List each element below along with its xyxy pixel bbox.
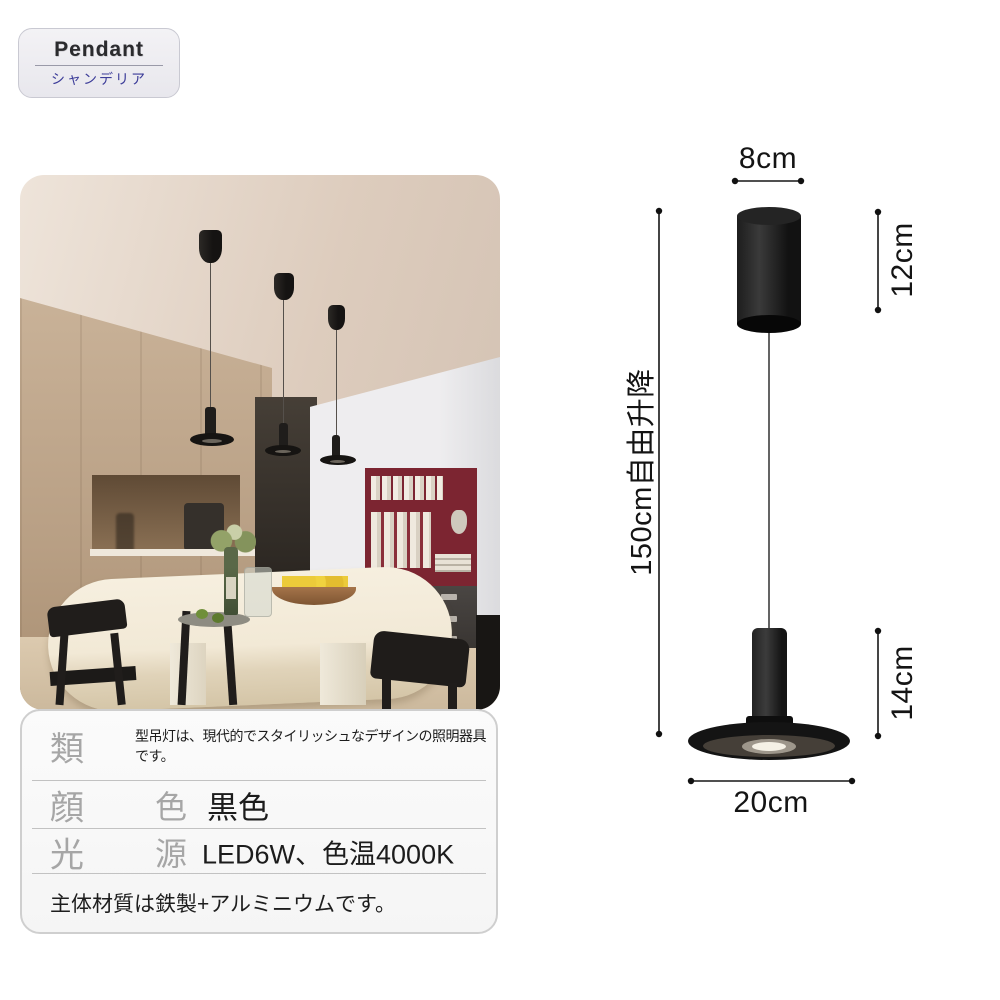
- measure-dot: [688, 778, 694, 784]
- spec-value-light: LED6W、色温4000K: [202, 832, 454, 871]
- spec-table: 類 型吊灯は、現代的でスタイリッシュなデザインの照明器具です。 顔 色 黒色 光…: [20, 709, 498, 934]
- spec-label-light-2: 源: [155, 829, 187, 875]
- dim-label-shade-diameter: 20cm: [733, 786, 808, 820]
- pendant-lens: [330, 460, 345, 463]
- table-pedestal: [320, 643, 366, 705]
- pendant-ceiling-mount: [199, 230, 222, 263]
- measure-dot: [875, 733, 881, 739]
- pendant-stem: [332, 435, 340, 457]
- measure-dot: [849, 778, 855, 784]
- spec-label-type: 類: [50, 722, 84, 771]
- lime-fruit: [196, 609, 208, 619]
- spec-label-color-2: 色: [155, 782, 187, 828]
- pendant-lens: [202, 439, 222, 443]
- lamp-canopy-top: [737, 207, 801, 225]
- lime-fruit: [212, 613, 224, 623]
- chair-leg: [448, 683, 457, 710]
- pendant-stem: [279, 423, 288, 447]
- product-sheet: Pendant シャンデリア: [0, 0, 1000, 1000]
- pendant-stem: [205, 407, 216, 435]
- spec-material-note: 主体材質は鉄製+アルミニウムです。: [50, 888, 396, 918]
- drawer-handle: [441, 594, 457, 600]
- measure-dot: [875, 307, 881, 313]
- brand-subtitle: シャンデリア: [51, 69, 147, 89]
- bookshelf-book-stack: [435, 554, 471, 572]
- chair-leg: [382, 679, 391, 710]
- lamp-canopy-body: [737, 216, 801, 324]
- lamp-stem: [752, 628, 787, 723]
- spec-label-light-1: 光: [50, 827, 84, 876]
- pendant-cable: [210, 263, 211, 410]
- measure-dot: [732, 178, 738, 184]
- badge-divider: [35, 65, 163, 66]
- measure-dot: [656, 208, 662, 214]
- spec-row-light-source: 光 源 LED6W、色温4000K: [22, 829, 496, 874]
- brand-name: Pendant: [54, 38, 144, 62]
- brand-badge: Pendant シャンデリア: [18, 28, 180, 98]
- bottle-label: [226, 577, 236, 599]
- dim-label-cable-length: 150cm自由升降: [618, 368, 660, 576]
- spec-row-material: 主体材質は鉄製+アルミニウムです。: [22, 874, 496, 932]
- lamp-canopy-bottom: [737, 315, 801, 333]
- dimension-diagram: 8cm 12cm 150cm自由升降 14cm 20cm: [560, 130, 980, 830]
- lamp-lens: [752, 742, 786, 751]
- measure-dot: [798, 178, 804, 184]
- dim-label-canopy-height: 12cm: [886, 222, 920, 297]
- spec-label-color-1: 顔: [50, 781, 84, 830]
- spec-value-type: 型吊灯は、現代的でスタイリッシュなデザインの照明器具です。: [135, 726, 490, 766]
- measure-dot: [875, 628, 881, 634]
- bookshelf-ornament: [451, 510, 467, 534]
- room-photo: [20, 175, 500, 710]
- measure-dot: [656, 731, 662, 737]
- pendant-ceiling-mount: [274, 273, 294, 300]
- dim-label-canopy-width: 8cm: [739, 142, 797, 176]
- chair-back: [476, 615, 500, 710]
- spec-row-type: 類 型吊灯は、現代的でスタイリッシュなデザインの照明器具です。: [22, 711, 496, 781]
- pendant-cable: [336, 330, 337, 435]
- pendant-cable: [283, 300, 284, 423]
- spec-value-color: 黒色: [207, 783, 269, 828]
- dim-label-lamp-height: 14cm: [886, 645, 920, 720]
- nook-shadow-item: [116, 513, 134, 551]
- pendant-ceiling-mount: [328, 305, 345, 330]
- measure-dot: [875, 209, 881, 215]
- spec-row-color: 顔 色 黒色: [22, 781, 496, 829]
- glass-vase: [244, 567, 272, 617]
- bookshelf-books-main: [371, 512, 431, 568]
- pendant-lens: [275, 450, 291, 453]
- bookshelf-books-top: [371, 476, 443, 500]
